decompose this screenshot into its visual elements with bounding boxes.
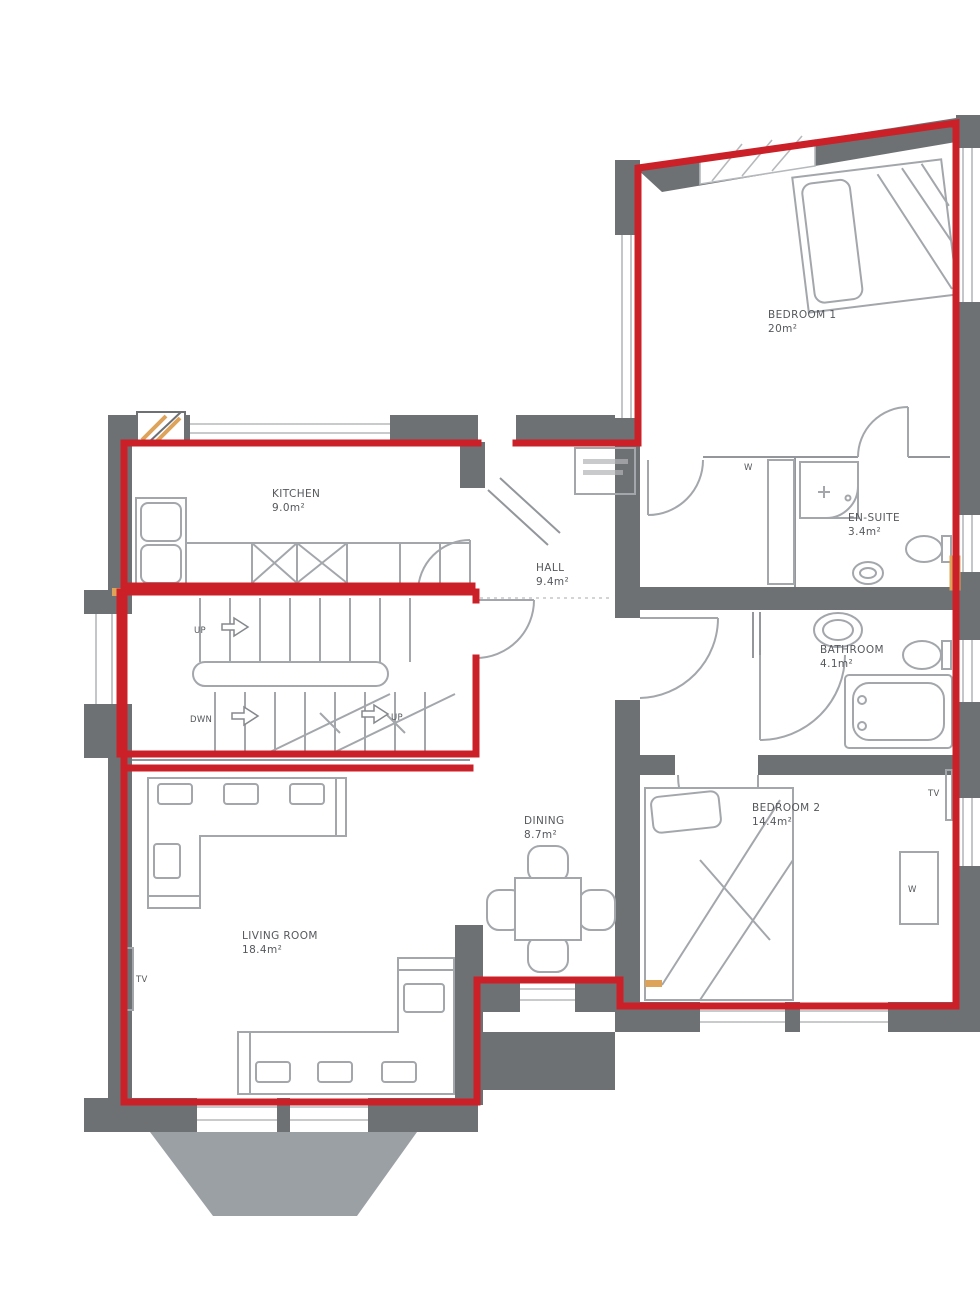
bedroom1-door: [648, 460, 703, 515]
bedroom2-tv-label: TV: [927, 789, 940, 799]
tv-unit: [946, 770, 952, 820]
stairs: UP DWN UP: [190, 598, 455, 754]
basin: [814, 613, 862, 647]
bathroom-label: BATHROOM 4.1m²: [820, 644, 884, 670]
ensuite-label: EN-SUITE 3.4m²: [848, 512, 900, 538]
bed-1: [792, 159, 959, 313]
dining-table: [515, 878, 581, 940]
svg-text:BEDROOM 1: BEDROOM 1: [768, 309, 836, 321]
shower: [800, 462, 858, 518]
stairs-down-label: DWN: [190, 715, 212, 725]
entrance-door: [476, 600, 534, 658]
stairs-up-label: UP: [194, 626, 206, 636]
stairwell-outline: [120, 592, 476, 754]
wardrobe2-label: W: [908, 885, 917, 895]
svg-text:EN-SUITE: EN-SUITE: [848, 512, 900, 524]
svg-text:4.1m²: 4.1m²: [820, 658, 853, 670]
svg-text:BEDROOM 2: BEDROOM 2: [752, 802, 820, 814]
bathroom-fixtures: [814, 613, 952, 748]
toilet: [903, 641, 941, 669]
svg-text:20m²: 20m²: [768, 323, 797, 335]
svg-text:LIVING ROOM: LIVING ROOM: [242, 930, 318, 942]
svg-text:BATHROOM: BATHROOM: [820, 644, 884, 656]
wardrobe1-label: W: [744, 463, 753, 473]
sofa-2: [238, 958, 454, 1094]
pillow: [650, 791, 721, 834]
corridor-door: [640, 618, 718, 698]
front-door-opening: [478, 415, 516, 442]
svg-text:DINING: DINING: [524, 815, 565, 827]
sofa-1: [148, 778, 346, 908]
stair-break-lines: [270, 694, 455, 752]
flue-hatch: [137, 412, 185, 444]
floor-plan-page: UP DWN UP W: [0, 0, 980, 1314]
dining-label: DINING 8.7m²: [524, 815, 565, 841]
down-arrow-icon: [232, 707, 258, 725]
bedroom1-label: BEDROOM 1 20m²: [768, 309, 836, 335]
stairs-up-label-2: UP: [391, 713, 403, 723]
toilet: [906, 536, 942, 562]
hall-label: HALL 9.4m²: [536, 562, 569, 588]
svg-text:9.4m²: 9.4m²: [536, 576, 569, 588]
sink-bowl: [141, 545, 181, 583]
room-labels: BEDROOM 1 20m² EN-SUITE 3.4m² KITCHEN 9.…: [242, 309, 900, 956]
svg-text:HALL: HALL: [536, 562, 564, 574]
sink-bowl: [141, 503, 181, 541]
basin: [853, 562, 883, 584]
chair: [528, 936, 568, 972]
dining-furniture: [487, 846, 615, 972]
living-tv-label: TV: [135, 975, 148, 985]
appliance-symbols: [252, 543, 347, 583]
bay-window: [150, 1132, 417, 1216]
chair: [528, 846, 568, 882]
stair-handrail: [193, 662, 388, 686]
svg-text:8.7m²: 8.7m²: [524, 829, 557, 841]
living-label: LIVING ROOM 18.4m²: [242, 930, 318, 956]
chair: [579, 890, 615, 930]
wardrobe-2: [900, 852, 938, 924]
svg-text:KITCHEN: KITCHEN: [272, 488, 320, 500]
wardrobe-1: [768, 460, 794, 584]
svg-text:14.4m²: 14.4m²: [752, 816, 792, 828]
svg-text:3.4m²: 3.4m²: [848, 526, 881, 538]
svg-text:18.4m²: 18.4m²: [242, 944, 282, 956]
floor-plan: UP DWN UP W: [0, 0, 980, 1314]
ensuite-door: [858, 407, 908, 457]
kitchen-label: KITCHEN 9.0m²: [272, 488, 320, 514]
up-arrow-icon: [222, 618, 248, 636]
svg-text:9.0m²: 9.0m²: [272, 502, 305, 514]
